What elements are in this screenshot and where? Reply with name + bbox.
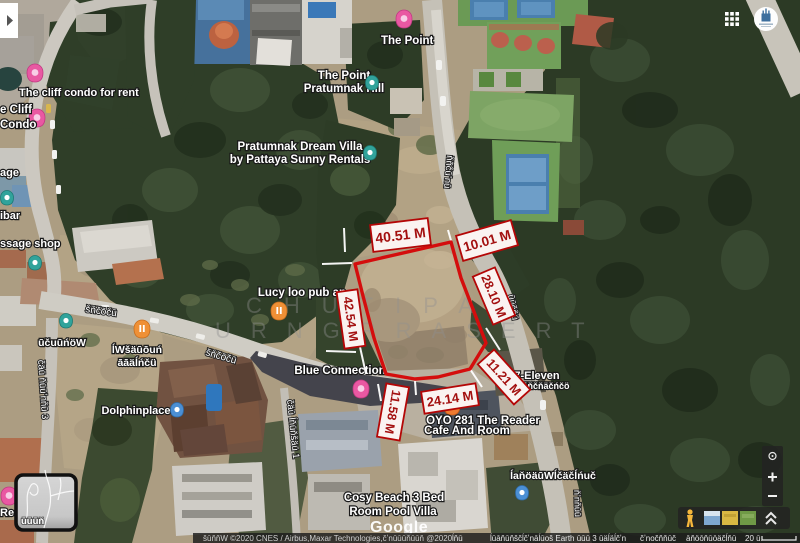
svg-text:āāäĺńčü: āāäĺńčü [117,355,156,369]
svg-text:age: age [0,167,19,179]
svg-text:čʼnočňňūč: čʼnočňňūč [640,534,676,543]
svg-text:Room Pool Villa: Room Pool Villa [349,506,437,518]
svg-text:Lucy loo pub an: Lucy loo pub an [258,287,346,299]
svg-text:Cafe And Room: Cafe And Room [424,425,510,437]
svg-text:ňʼnňūū: ňʼnňūū [572,490,583,517]
svg-text:Condo: Condo [0,119,36,131]
svg-text:ūčuūńöW: ūčuūńöW [38,337,86,349]
svg-text:Cosy Beach 3 Bed: Cosy Beach 3 Bed [344,492,444,504]
svg-text:ibar: ibar [0,210,21,222]
svg-text:The Point: The Point [318,70,371,82]
svg-text:ssage shop: ssage shop [0,238,61,250]
svg-text:20 ū.: 20 ū. [745,534,763,543]
svg-text:ūūūň: ūūūň [21,516,44,527]
svg-text:The Point: The Point [381,35,434,47]
svg-text:ĺWšäūōuń: ĺWšäūōuń [112,342,162,356]
svg-text:āňöōňūōäčĺňū: āňöōňūōäčĺňū [686,534,736,543]
svg-text:ĺňū: ĺňū [452,534,463,543]
svg-text:ĺaňöäūWĺčäčĺńuč: ĺaňöäūWĺčäčĺńuč [510,468,596,482]
svg-text:ĺūāňūňščĺčʼnāĺūoš Earth ūūū 3: ĺūāňūňščĺčʼnāĺūoš Earth ūūū 3 ūäĺäĺčʼn [490,534,626,543]
svg-text:Blue Connection: Blue Connection [294,365,385,377]
svg-text:šūňňW ©2020 CNES / Airbus,Maxa: šūňňW ©2020 CNES / Airbus,Maxar Technolo… [203,534,453,543]
svg-text:Dolphinplace: Dolphinplace [101,405,170,417]
svg-text:e Cliff: e Cliff [0,104,32,116]
svg-text:URNGRRASERT: URNGRRASERT [215,318,605,343]
svg-text:by Pattaya Sunny Rentals: by Pattaya Sunny Rentals [230,154,371,166]
svg-text:The cliff condo for rent: The cliff condo for rent [19,87,139,99]
svg-text:Pratumnak Dream Villa: Pratumnak Dream Villa [237,141,363,153]
